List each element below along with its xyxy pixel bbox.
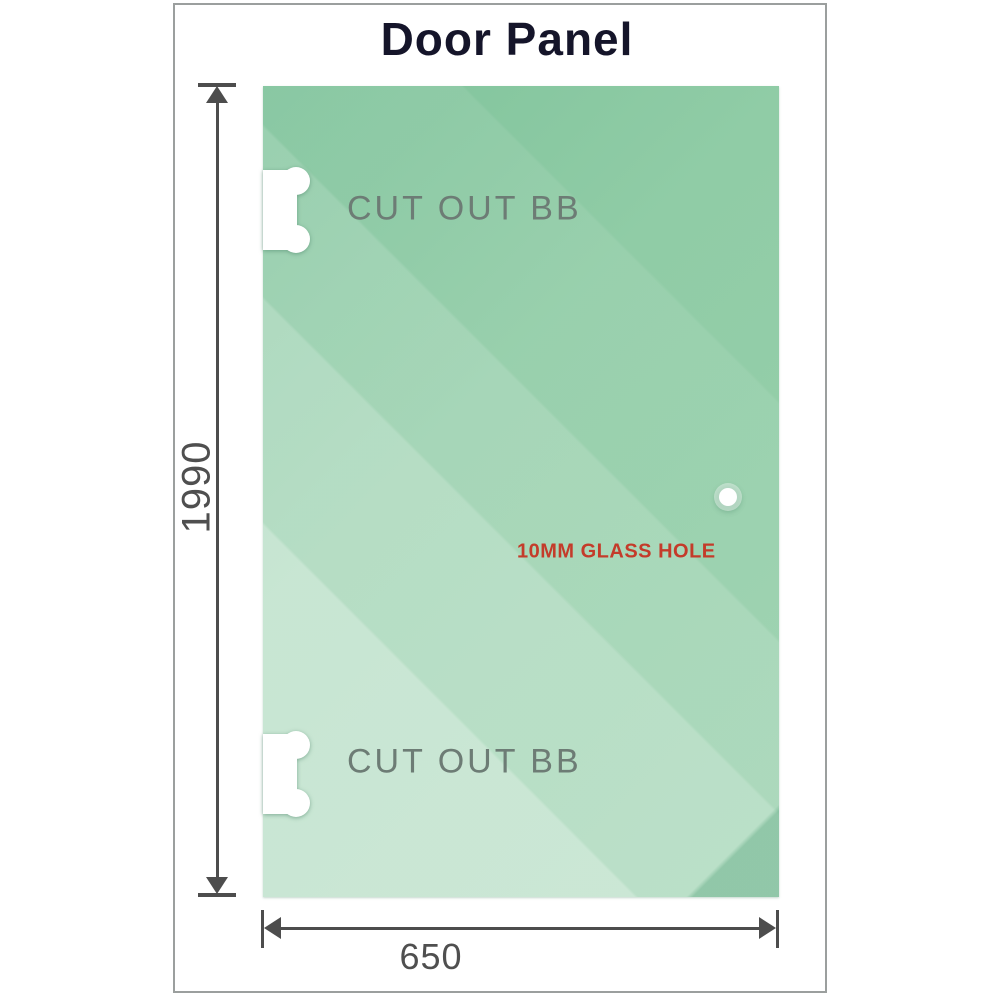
cutout-top-label: CUT OUT BB: [347, 190, 582, 229]
height-dimension-bottom-tick: [198, 893, 236, 897]
glass-hole-icon: [719, 488, 737, 506]
glass-hole-label: 10MM GLASS HOLE: [517, 541, 716, 564]
cutout-shape-icon: [263, 167, 311, 253]
width-dimension-line: [278, 927, 762, 930]
hinge-cutout-top: [263, 167, 311, 253]
door-panel-diagram: Door Panel CUT OUT BB CUT OUT BB 10MM GL…: [0, 0, 1000, 1000]
arrow-right-icon: [759, 917, 776, 939]
height-dimension-label: 1990: [175, 441, 220, 534]
page-title: Door Panel: [173, 12, 827, 66]
cutout-bottom-label: CUT OUT BB: [347, 743, 582, 782]
width-dimension-label: 650: [399, 936, 462, 978]
cutout-shape-icon: [263, 731, 311, 817]
width-dimension-right-tick: [776, 910, 779, 948]
hinge-cutout-bottom: [263, 731, 311, 817]
arrow-down-icon: [206, 877, 228, 894]
